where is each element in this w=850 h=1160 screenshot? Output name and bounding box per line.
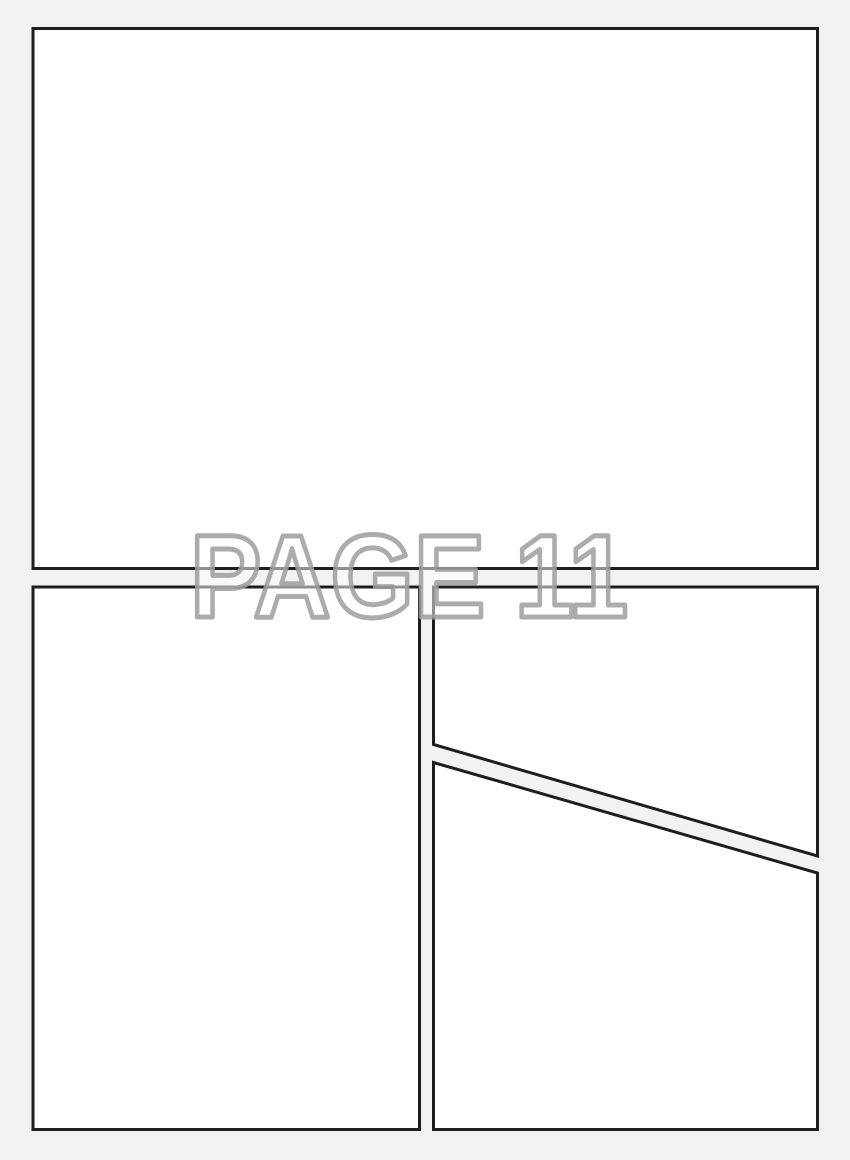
top-panel: [33, 29, 818, 569]
comic-page-template: PAGE 11: [0, 0, 850, 1160]
page-number-watermark: PAGE 11: [190, 511, 628, 643]
bottom-left-panel: [33, 587, 420, 1130]
comic-page-canvas: PAGE 11: [0, 0, 850, 1160]
